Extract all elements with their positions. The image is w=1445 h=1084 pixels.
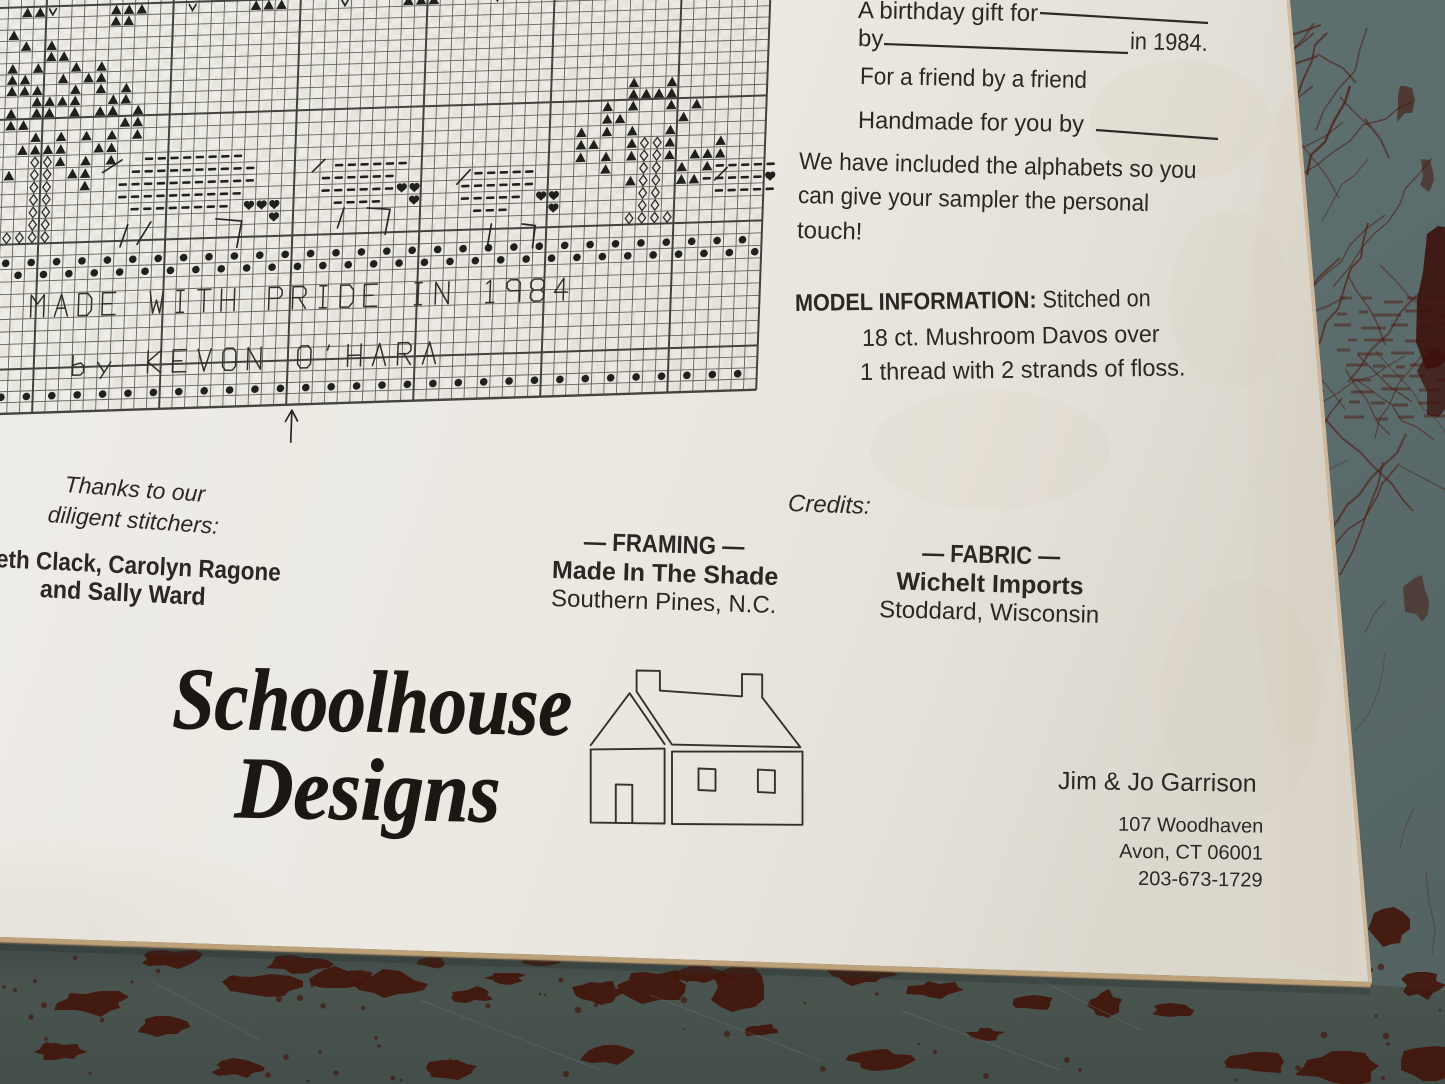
svg-text:Schoolhouse: Schoolhouse [172, 650, 573, 755]
svg-text:Designs: Designs [233, 740, 501, 841]
